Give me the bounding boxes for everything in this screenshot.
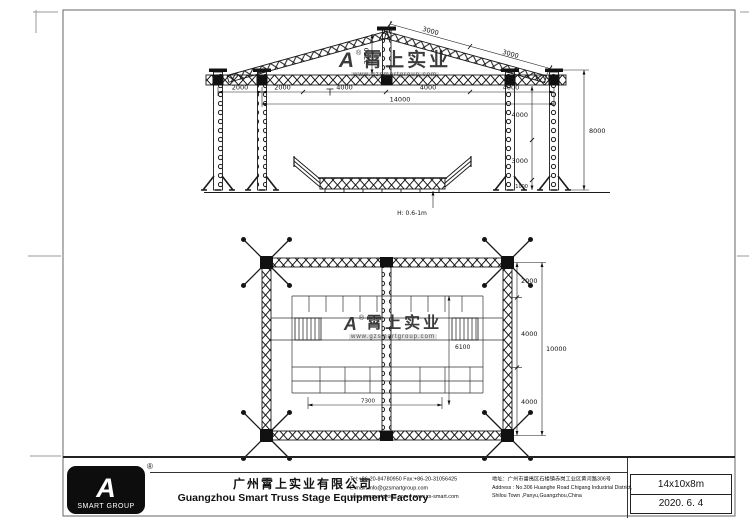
dim-label: 3000 [501, 48, 519, 60]
drawing-info-box: 14x10x8m 2020. 6. 4 [630, 474, 732, 514]
address-cn: 地址：广州市番禺区石楼镇赤岗工业区黄河路306号 [492, 476, 635, 484]
plan-beam-left [262, 258, 271, 440]
technical-drawing: 3000 3000 2200 2000 2000 4000 4000 4000 … [0, 0, 750, 524]
structure-size: 14x10x8m [631, 475, 731, 495]
title-block-divider [150, 472, 627, 473]
tel-fax: Tel:+86-20-84780950 Fax:+86-20-31056425 [350, 476, 498, 484]
dim-label-total-width: 14000 [390, 96, 411, 104]
email: E-mail: info@gzsmartgroup.com [350, 484, 498, 492]
dim-label: 4000 [336, 84, 353, 92]
dim-label: 4000 [521, 330, 538, 338]
address-en-line1: Address : No.306 Huanghe Road Chigang In… [492, 484, 635, 492]
dim-label: 2000 [521, 277, 538, 285]
stage-stairs-right [452, 318, 478, 340]
drawing-date: 2020. 6. 4 [631, 495, 731, 514]
dim-label: 6100 [455, 344, 470, 351]
dim-label: 7300 [361, 399, 375, 405]
dim-label: 2000 [232, 84, 249, 92]
logo-mark: A [96, 475, 116, 502]
plan-beam-right [503, 258, 512, 440]
dim-label-total-height: 8000 [589, 127, 606, 135]
dim-label: 4000 [521, 398, 538, 406]
dim-label: 1000 [515, 184, 528, 190]
company-logo: A SMART GROUP [67, 466, 145, 514]
drawing-sheet: 3000 3000 2200 2000 2000 4000 4000 4000 … [0, 0, 750, 524]
dim-label-total-depth: 10000 [546, 345, 567, 353]
logo-text: SMART GROUP [77, 503, 134, 510]
dim-label: 4000 [511, 111, 528, 119]
stage-stairs-left [295, 318, 321, 340]
title-block: A SMART GROUP ® 广州霄上实业有限公司 Guangzhou Sma… [63, 456, 735, 518]
address-info: 地址：广州市番禺区石楼镇赤岗工业区黄河路306号 Address : No.30… [492, 476, 635, 500]
elevation-view: 3000 3000 2200 2000 2000 4000 4000 4000 … [201, 21, 610, 217]
plan-center-truss [382, 267, 391, 431]
registered-mark: ® [147, 462, 153, 471]
truss-column-far-left [201, 69, 235, 191]
plan-view: 6100 7300 2000 4000 4000 10000 [242, 238, 567, 461]
contact-info: Tel:+86-20-84780950 Fax:+86-20-31056425 … [350, 476, 498, 501]
stage-height-note: H: 0.6-1m [397, 210, 427, 217]
websites: www.gzsmartgroup.com / www.xs-smart.com [350, 493, 498, 501]
dim-label: 2000 [274, 84, 291, 92]
dim-label: 4000 [420, 84, 437, 92]
stage-rail-left [294, 156, 320, 187]
truss-column-far-right [537, 69, 571, 191]
address-en-line2: Shilou Town ,Panyu,Guangzhou,China [492, 492, 635, 500]
stage-rail-right [445, 156, 471, 187]
dim-label: 3000 [511, 157, 528, 165]
dim-label: 4000 [503, 84, 520, 92]
dim-label: 2200 [363, 48, 371, 65]
stage-platform [294, 156, 471, 193]
ridge-post [383, 30, 392, 75]
